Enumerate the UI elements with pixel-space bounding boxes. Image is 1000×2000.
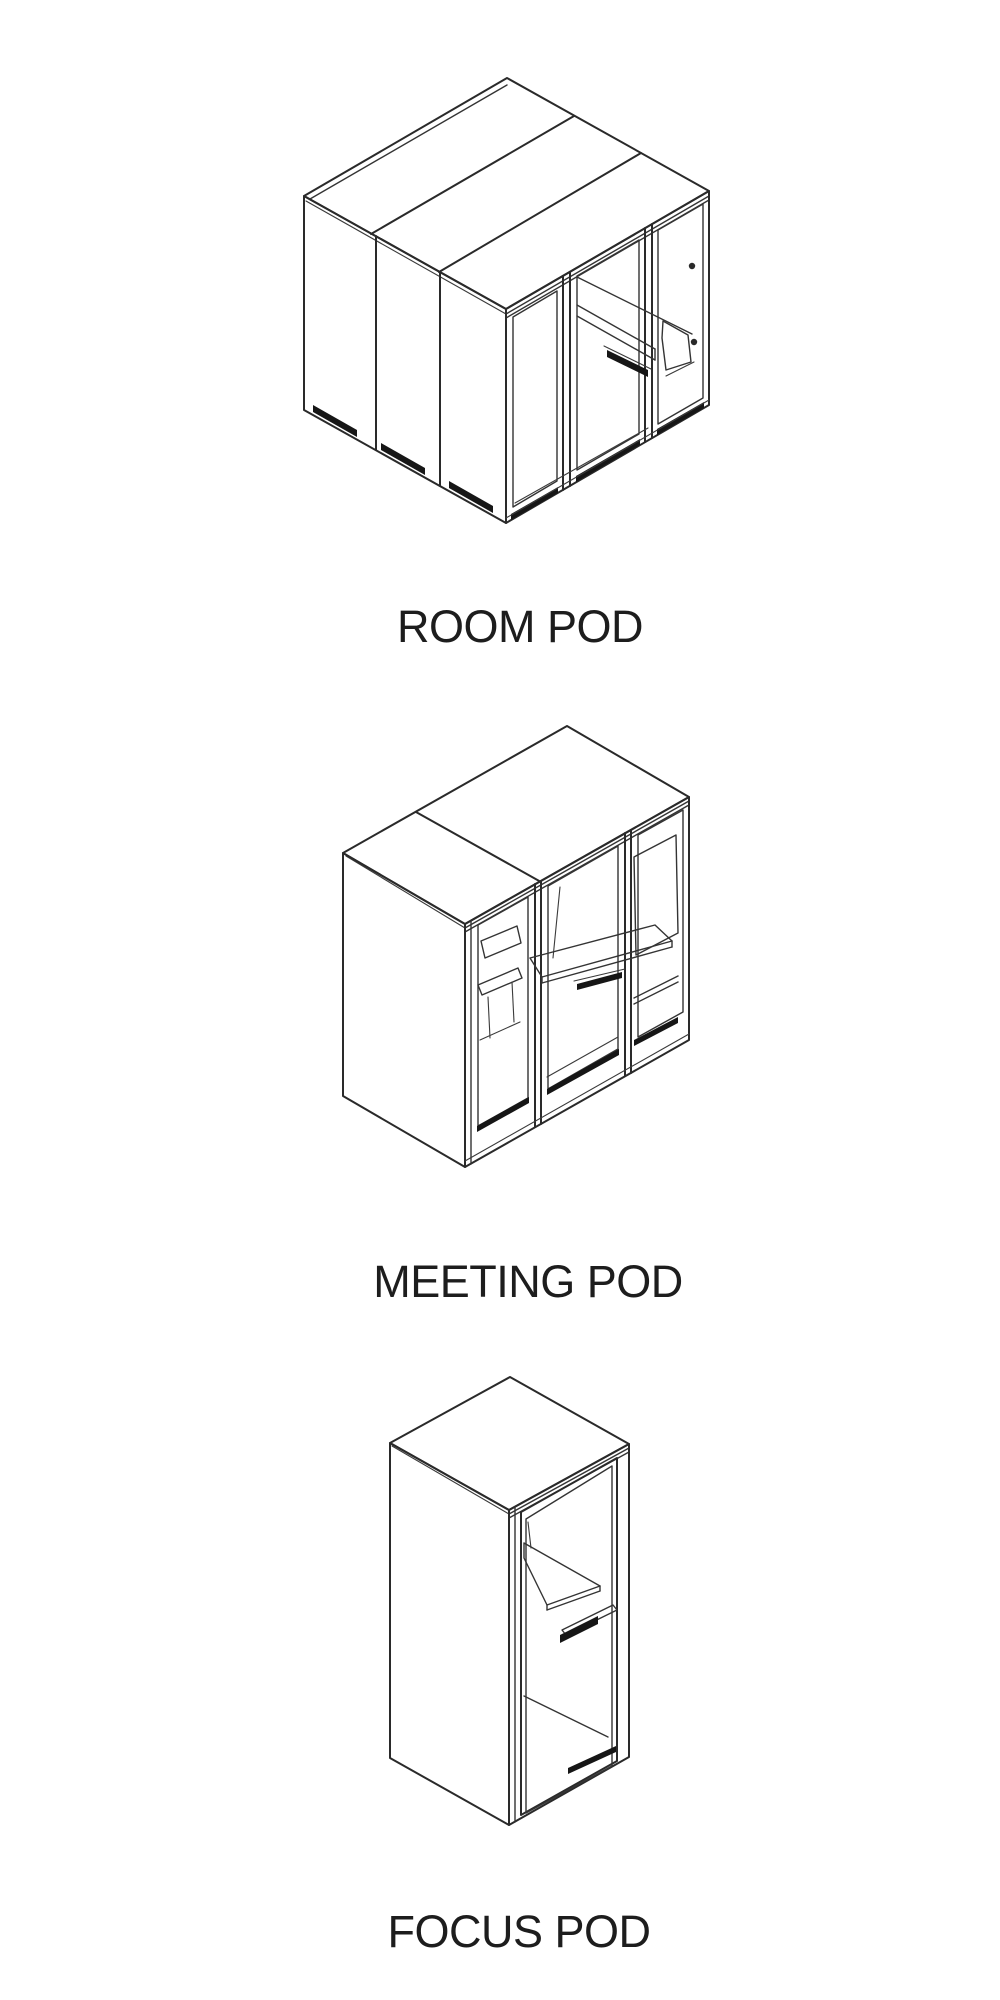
room-pod-card[interactable]: ROOM POD xyxy=(280,40,740,560)
meeting-pod-drawing xyxy=(330,700,710,1200)
meeting-pod-label: MEETING POD xyxy=(373,1259,683,1304)
pod-catalog-page: ROOM POD xyxy=(0,0,1000,2000)
focus-pod-drawing xyxy=(375,1360,645,1850)
room-pod-label: ROOM POD xyxy=(397,604,643,649)
room-pod-drawing xyxy=(280,40,740,560)
focus-pod-card[interactable]: FOCUS POD xyxy=(375,1360,645,1850)
focus-pod-label: FOCUS POD xyxy=(387,1909,650,1954)
meeting-pod-card[interactable]: MEETING POD xyxy=(330,700,710,1200)
